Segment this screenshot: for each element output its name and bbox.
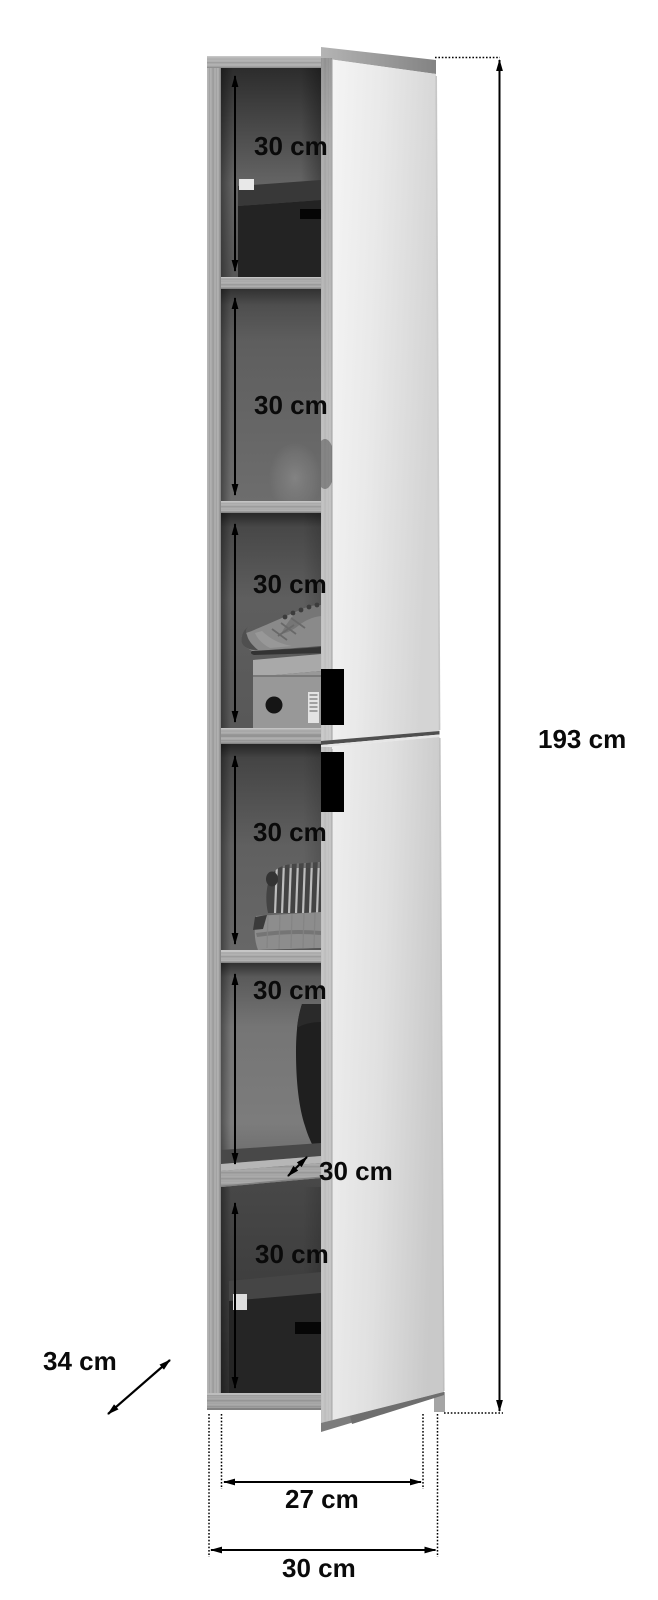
svg-text:30 cm: 30 cm <box>319 1156 393 1186</box>
svg-text:30 cm: 30 cm <box>253 817 327 847</box>
svg-text:27 cm: 27 cm <box>285 1484 359 1514</box>
svg-text:34 cm: 34 cm <box>43 1346 117 1376</box>
svg-text:193 cm: 193 cm <box>538 724 626 754</box>
svg-text:30 cm: 30 cm <box>255 1239 329 1269</box>
svg-text:30 cm: 30 cm <box>282 1553 356 1583</box>
svg-text:30 cm: 30 cm <box>254 390 328 420</box>
svg-text:30 cm: 30 cm <box>253 975 327 1005</box>
svg-text:30 cm: 30 cm <box>254 131 328 161</box>
svg-text:30 cm: 30 cm <box>253 569 327 599</box>
